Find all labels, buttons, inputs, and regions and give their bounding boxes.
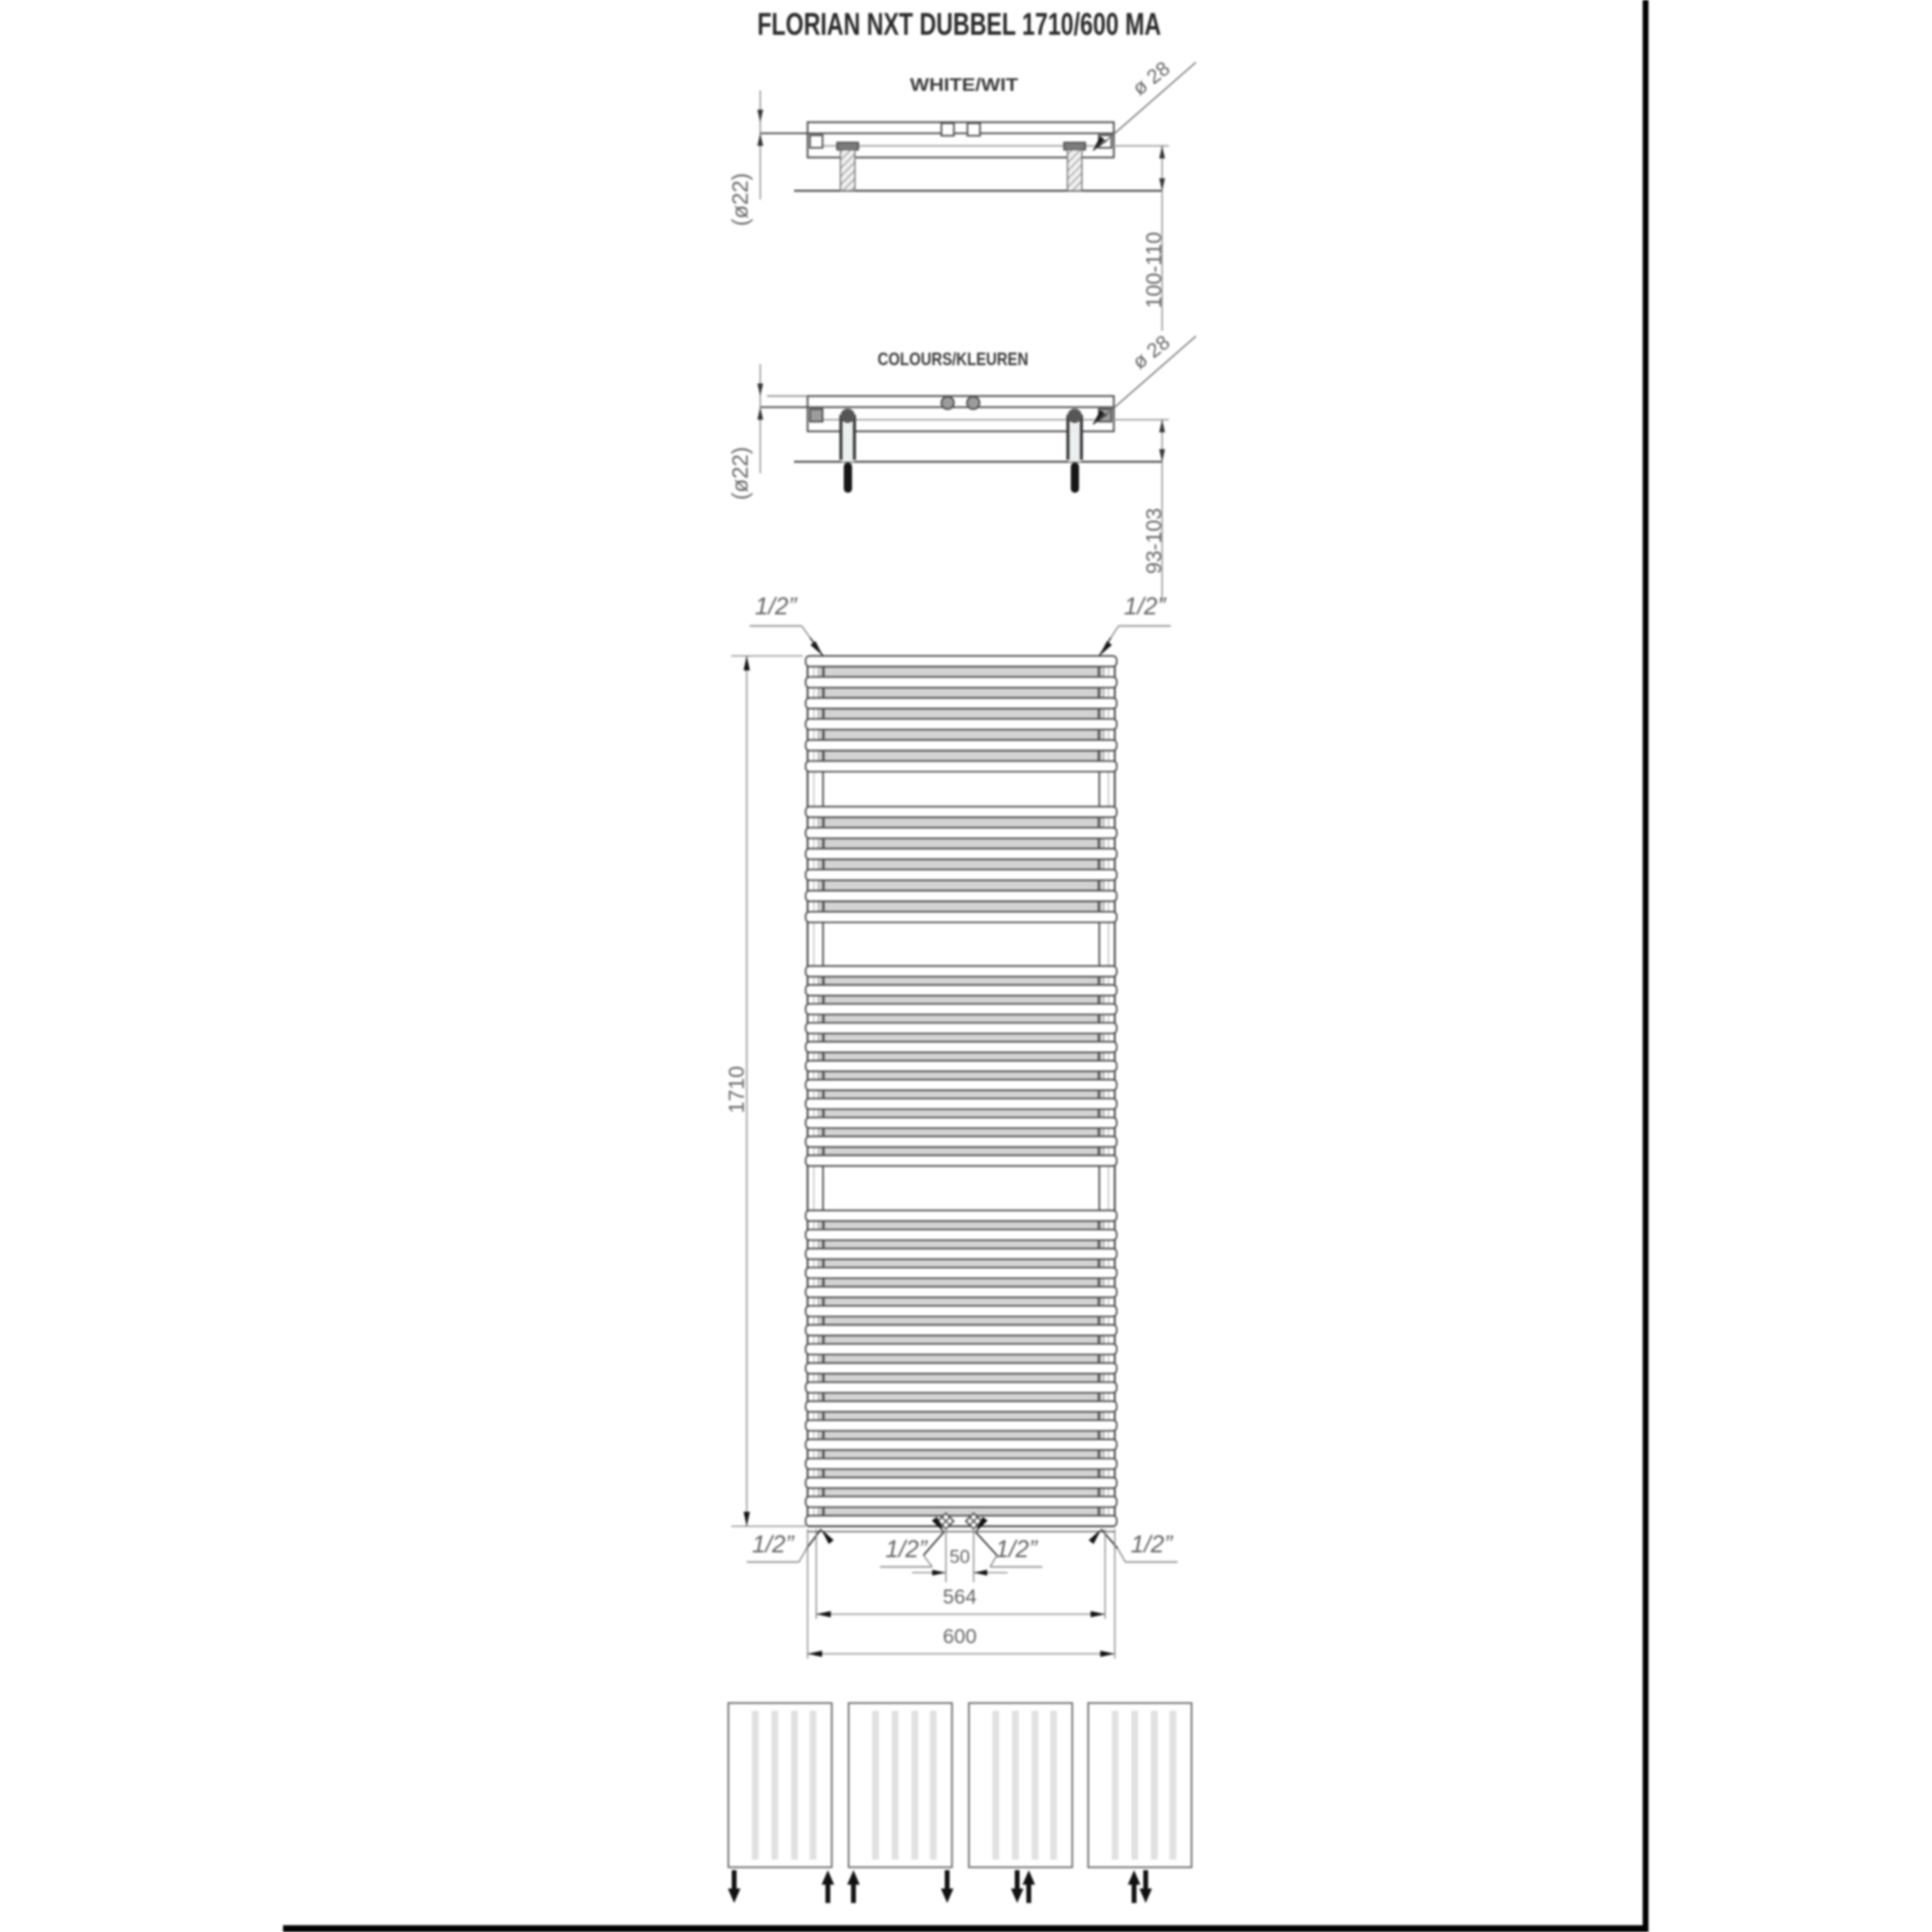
svg-text:564: 564 (943, 1586, 977, 1608)
svg-text:(ø22): (ø22) (727, 173, 753, 226)
svg-text:COLOURS/KLEUREN: COLOURS/KLEUREN (878, 350, 1029, 369)
svg-text:ø 28: ø 28 (1128, 331, 1174, 374)
svg-text:1/2”: 1/2” (995, 1536, 1038, 1563)
svg-text:1710: 1710 (724, 1066, 749, 1114)
svg-text:FLORIAN NXT DUBBEL 1710/600 MA: FLORIAN NXT DUBBEL 1710/600 MA (757, 7, 1161, 42)
svg-text:1/2”: 1/2” (752, 1531, 795, 1558)
svg-text:100-110: 100-110 (1142, 232, 1166, 308)
svg-text:93-103: 93-103 (1142, 508, 1166, 575)
svg-text:1/2”: 1/2” (885, 1536, 928, 1563)
svg-text:600: 600 (943, 1626, 977, 1648)
svg-text:WHITE/WIT: WHITE/WIT (910, 75, 1018, 95)
svg-text:ø 28: ø 28 (1128, 57, 1174, 99)
svg-text:1/2”: 1/2” (1130, 1531, 1174, 1558)
svg-text:(ø22): (ø22) (727, 447, 753, 500)
svg-text:1/2”: 1/2” (754, 593, 798, 620)
svg-text:1/2”: 1/2” (1123, 593, 1167, 620)
svg-text:50: 50 (950, 1548, 970, 1568)
